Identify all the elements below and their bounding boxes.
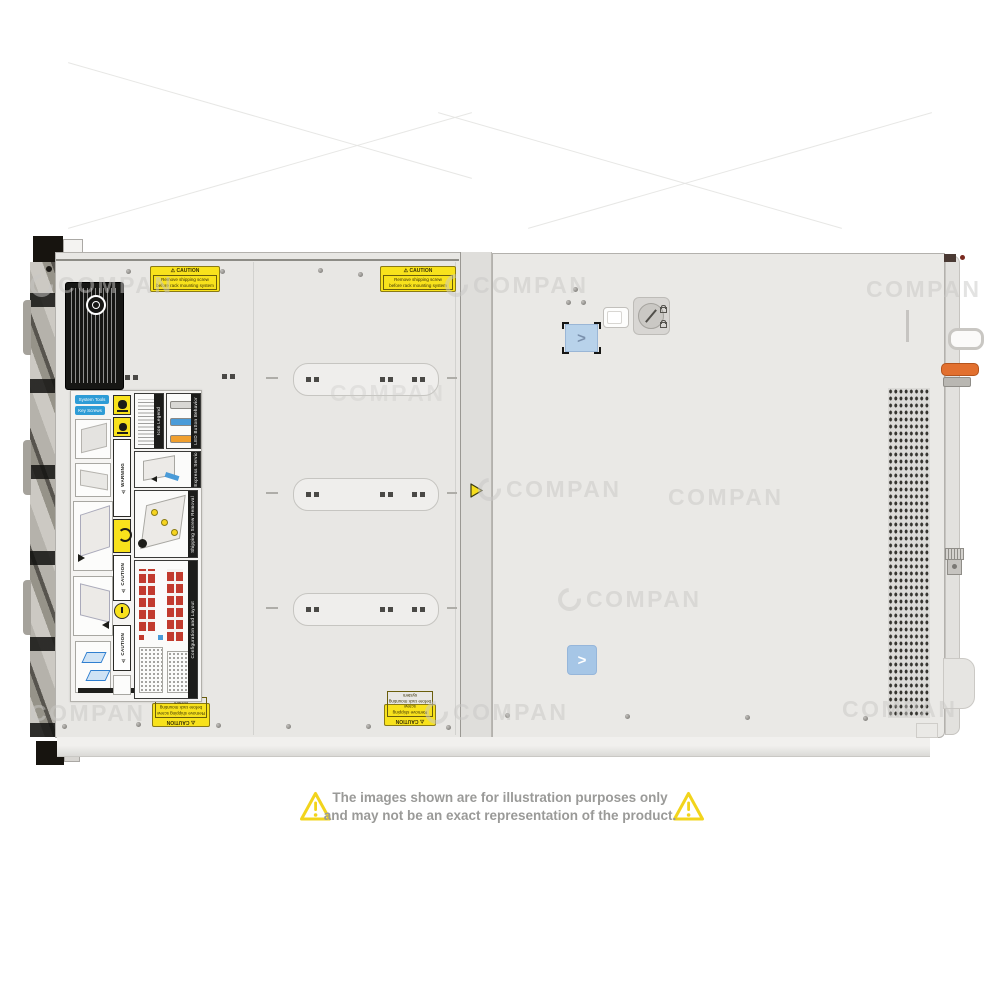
rear-corner-block: [944, 254, 956, 262]
pinch-hazard-icon: [113, 395, 131, 415]
vent-hole-pair: [306, 377, 319, 382]
alignment-mark: [266, 607, 278, 609]
caution-text-box: ⚠ CAUTION: [113, 555, 131, 601]
rotate-hazard-icon: [113, 519, 131, 553]
grid-legend-swatch: [139, 635, 144, 640]
screw: [446, 725, 451, 730]
caution-label-line1: Remove shipping screw: [156, 711, 206, 717]
alignment-mark: [447, 492, 457, 494]
caution-label-line1: Remove shipping screw: [384, 277, 452, 283]
caution-label-line2: before rack mounting system: [384, 283, 452, 289]
caution-label-line2: before rack mounting system: [388, 693, 432, 704]
caution-label-title: ⚠ CAUTION: [155, 719, 207, 725]
screw: [318, 268, 323, 273]
warning-text-box: ⚠ WARNING: [113, 439, 131, 517]
vent-hole-pair: [380, 492, 393, 497]
rear-rounded-tab: [943, 658, 975, 709]
front-bezel-bump: [23, 440, 31, 495]
screw: [566, 300, 571, 305]
caution-label-line1: Remove shipping screw: [388, 704, 432, 715]
disclaimer-line2: and may not be an exact representation o…: [0, 807, 1000, 825]
cover-release-button: >: [565, 324, 598, 352]
rear-faint-text: [906, 310, 909, 342]
warning-text: ⚠ WARNING: [120, 463, 125, 494]
configuration-layout-panel: Configuration and Layout: [134, 560, 198, 699]
label-diagram: [113, 675, 131, 695]
grid-legend-swatch: [158, 635, 163, 640]
front-cover-seam: [253, 262, 254, 735]
screw: [46, 266, 52, 272]
unlock-icon: [660, 307, 667, 313]
shipping-screw-title: Shipping Screw Removal: [190, 496, 195, 553]
front-bezel-bump: [23, 580, 31, 635]
vent-hole-pair: [412, 492, 425, 497]
label-diagram-latch-blue: [75, 641, 111, 693]
configuration-layout-title: Configuration and Layout: [190, 601, 195, 659]
chassis-bottom-edge: [57, 737, 930, 757]
caution-label-title: ⚠ CAUTION: [387, 718, 433, 724]
vent-frame-mark: [916, 723, 938, 738]
caution-label-title: ⚠ CAUTION: [153, 268, 217, 274]
shipping-screw-panel: Shipping Screw Removal: [134, 490, 198, 558]
label-diagram: [73, 576, 113, 636]
label-chip-key-screws: Key Screws: [75, 406, 105, 415]
screw: [505, 713, 510, 718]
screw: [216, 723, 221, 728]
screw: [126, 269, 131, 274]
caution-text: ⚠ CAUTION: [120, 633, 125, 662]
cover-slide-latch: [603, 307, 629, 328]
service-instruction-label: System Tools Key Screws: [70, 390, 202, 702]
led-panel-title: LED Button Behavior: [193, 397, 198, 445]
caution-text: ⚠ CAUTION: [120, 563, 125, 592]
label-diagram: [75, 463, 111, 497]
screw: [366, 724, 371, 729]
vent-hole-pair: [380, 377, 393, 382]
rear-corner-dot: [960, 255, 965, 260]
screw: [220, 269, 225, 274]
alignment-mark: [447, 607, 457, 609]
icon-legend-panel: Icon Legend: [134, 393, 164, 449]
label-chip-system-tools: System Tools: [75, 395, 109, 404]
screw: [581, 300, 586, 305]
front-cover-seam: [455, 262, 456, 735]
screw: [625, 714, 630, 719]
drive-layout-grid: [139, 569, 155, 631]
alignment-mark: [266, 492, 278, 494]
caution-label-bottom-right: ⚠ CAUTION Remove shipping screw before r…: [384, 704, 436, 726]
wait-time-icon: [114, 603, 130, 619]
caution-label-bottom-left: ⚠ CAUTION Remove shipping screw before r…: [152, 703, 210, 727]
screw: [62, 724, 67, 729]
alignment-mark: [266, 377, 278, 379]
disclaimer-line1: The images shown are for illustration pu…: [0, 789, 1000, 807]
rear-handle-ring: [948, 328, 984, 350]
screw: [286, 724, 291, 729]
rear-latch-bit: [943, 377, 971, 387]
icon-legend-title: Icon Legend: [156, 407, 161, 435]
secondary-release-button: >: [567, 645, 597, 675]
front-cover-top-seam: [56, 259, 459, 261]
small-warning-triangle-icon: [468, 482, 485, 499]
regulatory-label: [65, 282, 124, 390]
regulatory-logo-icon: [86, 295, 106, 315]
server-top-photo: ⚠ CAUTION Remove shipping screw before r…: [0, 0, 1000, 1000]
alignment-mark: [447, 377, 457, 379]
drive-layout-grid: [167, 569, 183, 641]
front-bezel-bump: [23, 300, 31, 355]
service-tag-title: Rear Express Service Tag: [193, 451, 198, 488]
caution-label-line2: before rack mounting system: [154, 283, 216, 289]
screw: [136, 722, 141, 727]
service-tag-panel: Rear Express Service Tag: [134, 451, 201, 488]
caution-label-line1: Remove shipping screw: [154, 277, 216, 283]
thumbscrew-base: [947, 559, 962, 575]
vent-hole-pair: [412, 607, 425, 612]
chassis-rear-cover: [492, 253, 945, 738]
vent-hole-pair: [380, 607, 393, 612]
led-button-behavior-panel: LED Button Behavior: [166, 393, 201, 449]
caution-label-top-right: ⚠ CAUTION Remove shipping screw before r…: [380, 266, 456, 292]
vent-hole-pair: [125, 375, 138, 380]
vent-hole-pair: [306, 492, 319, 497]
vent-hole-pair: [412, 377, 425, 382]
label-diagram: [73, 501, 113, 571]
screw: [573, 287, 578, 292]
caution-text-box: ⚠ CAUTION: [113, 625, 131, 671]
cover-keylock: [633, 297, 670, 335]
screw: [863, 716, 868, 721]
lock-icon: [660, 322, 667, 328]
label-diagram: [75, 419, 111, 459]
orange-release-lever: [941, 363, 979, 376]
screw: [745, 715, 750, 720]
label-diagram: [139, 647, 163, 693]
screw: [358, 272, 363, 277]
caution-label-title: ⚠ CAUTION: [383, 268, 453, 274]
label-baseline-bar: [78, 688, 141, 693]
divider-warning-sticker: [468, 482, 485, 499]
product-photo-page: { "watermark": { "text": "COMPAN" }, "di…: [0, 0, 1000, 1000]
pinch-hazard-icon: [113, 417, 131, 437]
vent-hole-pair: [306, 607, 319, 612]
disclaimer-text: The images shown are for illustration pu…: [0, 789, 1000, 824]
front-bezel-strip: [30, 262, 57, 737]
psu-vent-grid: [888, 388, 930, 718]
caution-label-top-left: ⚠ CAUTION Remove shipping screw before r…: [150, 266, 220, 292]
vent-hole-pair: [222, 374, 235, 379]
